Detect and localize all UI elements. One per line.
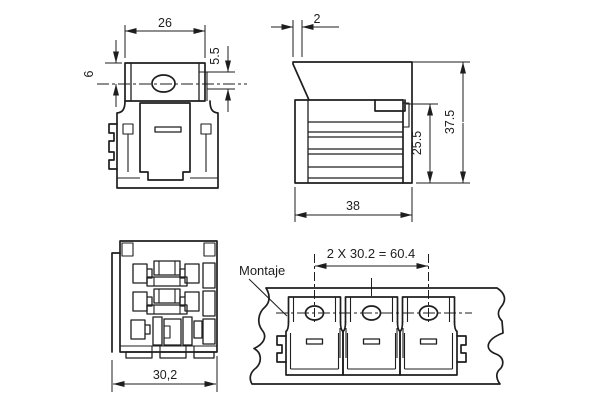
side-view: 2 25.5 37.5 38 (271, 12, 470, 222)
dim-label-front-left-offset: 6 (82, 70, 96, 77)
front-center-pocket (140, 103, 190, 180)
bottom-right-terminal-column (203, 263, 215, 344)
montaje-leader-line (249, 279, 287, 316)
side-slats (308, 122, 403, 167)
bottom-corner-tabs (122, 243, 215, 256)
side-inner-left (308, 100, 403, 183)
dim-side-inner-height: 25.5 (406, 104, 438, 183)
montaje-label: Montaje (239, 263, 285, 278)
dim-mount-spacing: 2 X 30.2 = 60.4 (315, 246, 429, 322)
front-slot (155, 127, 181, 132)
drawing-canvas: 26 6 5.5 2 (0, 0, 600, 400)
dim-label-side-depth: 38 (346, 199, 360, 213)
technical-drawing: 26 6 5.5 2 (0, 0, 600, 400)
dim-bottom-width: 30,2 (112, 356, 217, 392)
dim-front-right-offset: 5.5 (201, 46, 235, 112)
front-left-latch-notches (109, 124, 117, 169)
bottom-inner-bottom (120, 346, 217, 352)
mounting-view: Montaje 2 X 30.2 = 60.4 (239, 246, 504, 384)
side-step (375, 100, 405, 111)
bottom-terminal-row-1 (133, 261, 199, 286)
mount-left-clip (277, 336, 286, 362)
relay-unit-2 (343, 297, 400, 375)
dim-side-total-height: 37.5 (412, 62, 470, 183)
front-view: 26 6 5.5 (82, 16, 247, 188)
dim-label-mount-spacing: 2 X 30.2 = 60.4 (327, 246, 416, 261)
dim-front-width: 26 (125, 16, 205, 58)
dim-front-left-offset: 6 (82, 40, 122, 107)
bottom-view: 30,2 (112, 241, 217, 392)
front-bracket-inner-walls (131, 63, 199, 101)
mount-right-clip (457, 336, 466, 362)
front-body-outline (117, 101, 218, 188)
mount-unit-joints (340, 328, 403, 358)
dim-label-side-inner-height: 25.5 (410, 131, 424, 155)
side-latch (403, 103, 409, 127)
front-inner-lines (117, 134, 218, 178)
dim-label-bottom-width: 30,2 (153, 368, 177, 382)
front-mounting-bracket (125, 63, 205, 101)
dim-side-tab-offset: 2 (271, 12, 339, 57)
dim-label-front-right-offset: 5.5 (208, 47, 222, 64)
dim-side-depth: 38 (295, 187, 412, 222)
dim-label-side-tab-offset: 2 (314, 12, 321, 26)
bottom-terminal-row-2 (133, 289, 199, 314)
bottom-feet (126, 352, 214, 358)
bottom-left-strip (112, 253, 120, 352)
dim-label-front-width: 26 (158, 16, 172, 30)
dim-label-side-total-height: 37.5 (443, 110, 457, 134)
bottom-terminal-row-3 (131, 317, 202, 345)
